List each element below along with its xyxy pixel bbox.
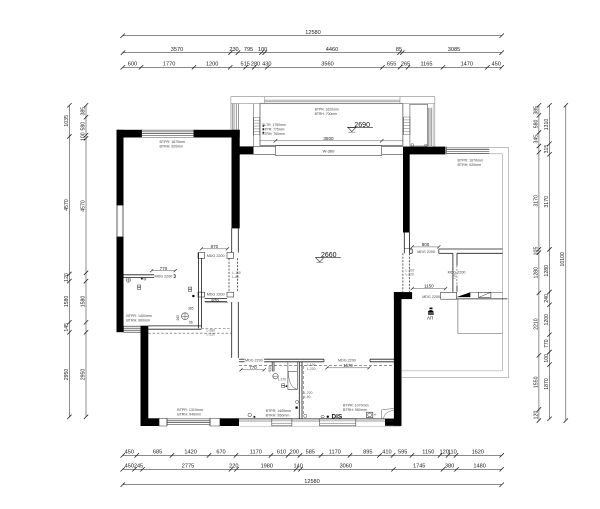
svg-text:100: 100 xyxy=(80,132,86,141)
svg-text:895: 895 xyxy=(363,450,372,456)
svg-text:1165: 1165 xyxy=(420,62,432,68)
svg-text:96: 96 xyxy=(189,321,193,325)
svg-text:120: 120 xyxy=(64,273,70,282)
svg-text:655: 655 xyxy=(387,62,396,68)
svg-text:BTRH: 950mm: BTRH: 950mm xyxy=(343,408,367,412)
svg-text:200: 200 xyxy=(290,450,299,456)
svg-text:MDG 2200: MDG 2200 xyxy=(422,295,440,299)
svg-text:265: 265 xyxy=(401,62,410,68)
svg-text:265: 265 xyxy=(176,315,180,321)
svg-text:MDG 2200: MDG 2200 xyxy=(155,274,173,278)
svg-text:385: 385 xyxy=(533,106,539,115)
svg-text:450: 450 xyxy=(492,62,501,68)
svg-text:MDG 2200: MDG 2200 xyxy=(245,359,263,363)
svg-text:380: 380 xyxy=(445,464,454,470)
svg-text:610: 610 xyxy=(277,450,286,456)
svg-text:1200: 1200 xyxy=(206,62,218,68)
svg-text:365: 365 xyxy=(188,307,194,311)
svg-text:2950: 2950 xyxy=(64,369,70,381)
svg-text:12580: 12580 xyxy=(305,30,321,36)
svg-text:410: 410 xyxy=(382,450,391,456)
svg-text:670: 670 xyxy=(216,450,225,456)
svg-text:2950: 2950 xyxy=(80,369,86,381)
svg-text:ΛΠ: ΛΠ xyxy=(427,316,433,321)
svg-text:595: 595 xyxy=(398,450,407,456)
svg-text:970: 970 xyxy=(211,298,219,303)
svg-text:1620: 1620 xyxy=(472,450,484,456)
svg-text:BTRH: 940mm: BTRH: 940mm xyxy=(177,412,201,416)
svg-text:L-80: L-80 xyxy=(232,275,239,279)
svg-text:BTPR: 1670mm: BTPR: 1670mm xyxy=(458,158,484,162)
svg-text:220: 220 xyxy=(229,464,238,470)
svg-text:720: 720 xyxy=(453,274,457,280)
svg-text:BTPR: 1070mm: BTPR: 1070mm xyxy=(343,403,369,407)
svg-text:MDG 2200: MDG 2200 xyxy=(207,293,225,297)
svg-text:770: 770 xyxy=(249,365,257,370)
svg-text:515: 515 xyxy=(241,62,250,68)
svg-text:BTRH: 760mm: BTRH: 760mm xyxy=(262,132,285,136)
svg-text:230: 230 xyxy=(229,47,238,53)
svg-text:L-170: L-170 xyxy=(278,378,286,382)
svg-text:1310: 1310 xyxy=(544,119,550,131)
svg-text:BTPR: 1620mm: BTPR: 1620mm xyxy=(315,107,339,111)
svg-text:MDG 2200: MDG 2200 xyxy=(448,270,466,274)
svg-text:2210: 2210 xyxy=(533,318,539,330)
svg-text:770: 770 xyxy=(544,339,550,348)
svg-text:1870: 1870 xyxy=(544,378,550,390)
svg-text:3060: 3060 xyxy=(340,464,352,470)
svg-text:3170: 3170 xyxy=(533,195,539,207)
svg-text:770: 770 xyxy=(160,266,168,271)
svg-text:1170: 1170 xyxy=(250,450,262,456)
svg-text:580: 580 xyxy=(533,119,539,128)
svg-text:685: 685 xyxy=(153,450,162,456)
svg-text:L-220: L-220 xyxy=(207,332,216,336)
svg-text:3560: 3560 xyxy=(321,62,333,68)
svg-text:BTRH: 920mm: BTRH: 920mm xyxy=(458,163,482,167)
svg-text:450: 450 xyxy=(125,464,134,470)
svg-text:240: 240 xyxy=(544,294,550,303)
svg-text:1580: 1580 xyxy=(64,296,70,308)
svg-text:BLTR: 1750mm: BLTR: 1750mm xyxy=(262,123,286,127)
svg-text:600: 600 xyxy=(268,366,272,372)
svg-text:145: 145 xyxy=(64,323,70,332)
svg-text:1280: 1280 xyxy=(544,265,550,277)
svg-text:3500: 3500 xyxy=(323,136,334,141)
svg-text:4570: 4570 xyxy=(80,200,86,212)
svg-text:970: 970 xyxy=(211,244,219,249)
svg-text:BTRH: 920mm: BTRH: 920mm xyxy=(160,145,184,149)
svg-text:1770: 1770 xyxy=(163,62,175,68)
svg-text:110: 110 xyxy=(448,450,457,456)
svg-text:12580: 12580 xyxy=(304,479,320,485)
svg-text:BTPR: 1400mm: BTPR: 1400mm xyxy=(126,314,152,318)
svg-text:1480: 1480 xyxy=(473,464,485,470)
svg-text:2690: 2690 xyxy=(354,122,370,129)
svg-text:3085: 3085 xyxy=(448,47,460,53)
svg-text:85: 85 xyxy=(396,47,402,53)
svg-text:800: 800 xyxy=(422,242,430,247)
svg-text:1280: 1280 xyxy=(533,267,539,279)
svg-text:600: 600 xyxy=(128,62,137,68)
svg-text:140: 140 xyxy=(294,464,303,470)
svg-text:BTPR: 1310mm: BTPR: 1310mm xyxy=(177,408,203,412)
svg-text:1150: 1150 xyxy=(422,450,434,456)
svg-text:BTRH: 700mm: BTRH: 700mm xyxy=(315,112,338,116)
svg-text:1980: 1980 xyxy=(261,464,273,470)
svg-text:580: 580 xyxy=(80,122,86,131)
svg-text:100: 100 xyxy=(258,47,267,53)
svg-text:385: 385 xyxy=(80,107,86,116)
svg-text:1035: 1035 xyxy=(64,115,70,127)
svg-text:BTPR: 1400mm: BTPR: 1400mm xyxy=(266,409,292,413)
svg-text:W-360: W-360 xyxy=(323,149,335,154)
svg-text:245: 245 xyxy=(134,464,143,470)
svg-text:585: 585 xyxy=(306,450,315,456)
svg-text:4460: 4460 xyxy=(326,47,338,53)
svg-text:1550: 1550 xyxy=(533,376,539,388)
svg-text:BTPR: 775mm: BTPR: 775mm xyxy=(262,128,284,132)
svg-text:3570: 3570 xyxy=(171,47,183,53)
svg-text:1745: 1745 xyxy=(413,464,425,470)
svg-text:MDG 2200: MDG 2200 xyxy=(207,254,225,258)
svg-text:1200: 1200 xyxy=(544,314,550,326)
svg-text:L-220: L-220 xyxy=(406,273,415,277)
svg-text:4570: 4570 xyxy=(64,199,70,211)
svg-text:L-90: L-90 xyxy=(304,395,311,399)
svg-text:3170: 3170 xyxy=(544,196,550,208)
svg-text:1170: 1170 xyxy=(329,450,341,456)
svg-text:2775: 2775 xyxy=(182,464,194,470)
svg-text:1420: 1420 xyxy=(184,450,196,456)
svg-text:MDG 2200: MDG 2200 xyxy=(417,250,435,254)
svg-text:L-220: L-220 xyxy=(307,367,316,371)
svg-text:BTRH: 950mm: BTRH: 950mm xyxy=(266,414,290,418)
svg-text:1150: 1150 xyxy=(424,284,434,289)
svg-text:120: 120 xyxy=(533,411,539,420)
svg-text:10100: 10100 xyxy=(560,252,566,267)
svg-text:BTRH: 900mm: BTRH: 900mm xyxy=(126,319,150,323)
svg-text:1580: 1580 xyxy=(80,296,86,308)
svg-text:795: 795 xyxy=(244,47,253,53)
svg-text:105: 105 xyxy=(533,247,539,256)
svg-text:430: 430 xyxy=(262,62,271,68)
svg-text:100: 100 xyxy=(544,354,550,363)
svg-text:280: 280 xyxy=(251,62,260,68)
svg-text:450: 450 xyxy=(125,450,134,456)
svg-text:345: 345 xyxy=(533,135,539,144)
svg-text:315: 315 xyxy=(544,145,550,154)
svg-text:BTPR: 1670mm: BTPR: 1670mm xyxy=(160,140,186,144)
svg-text:1470: 1470 xyxy=(461,62,473,68)
